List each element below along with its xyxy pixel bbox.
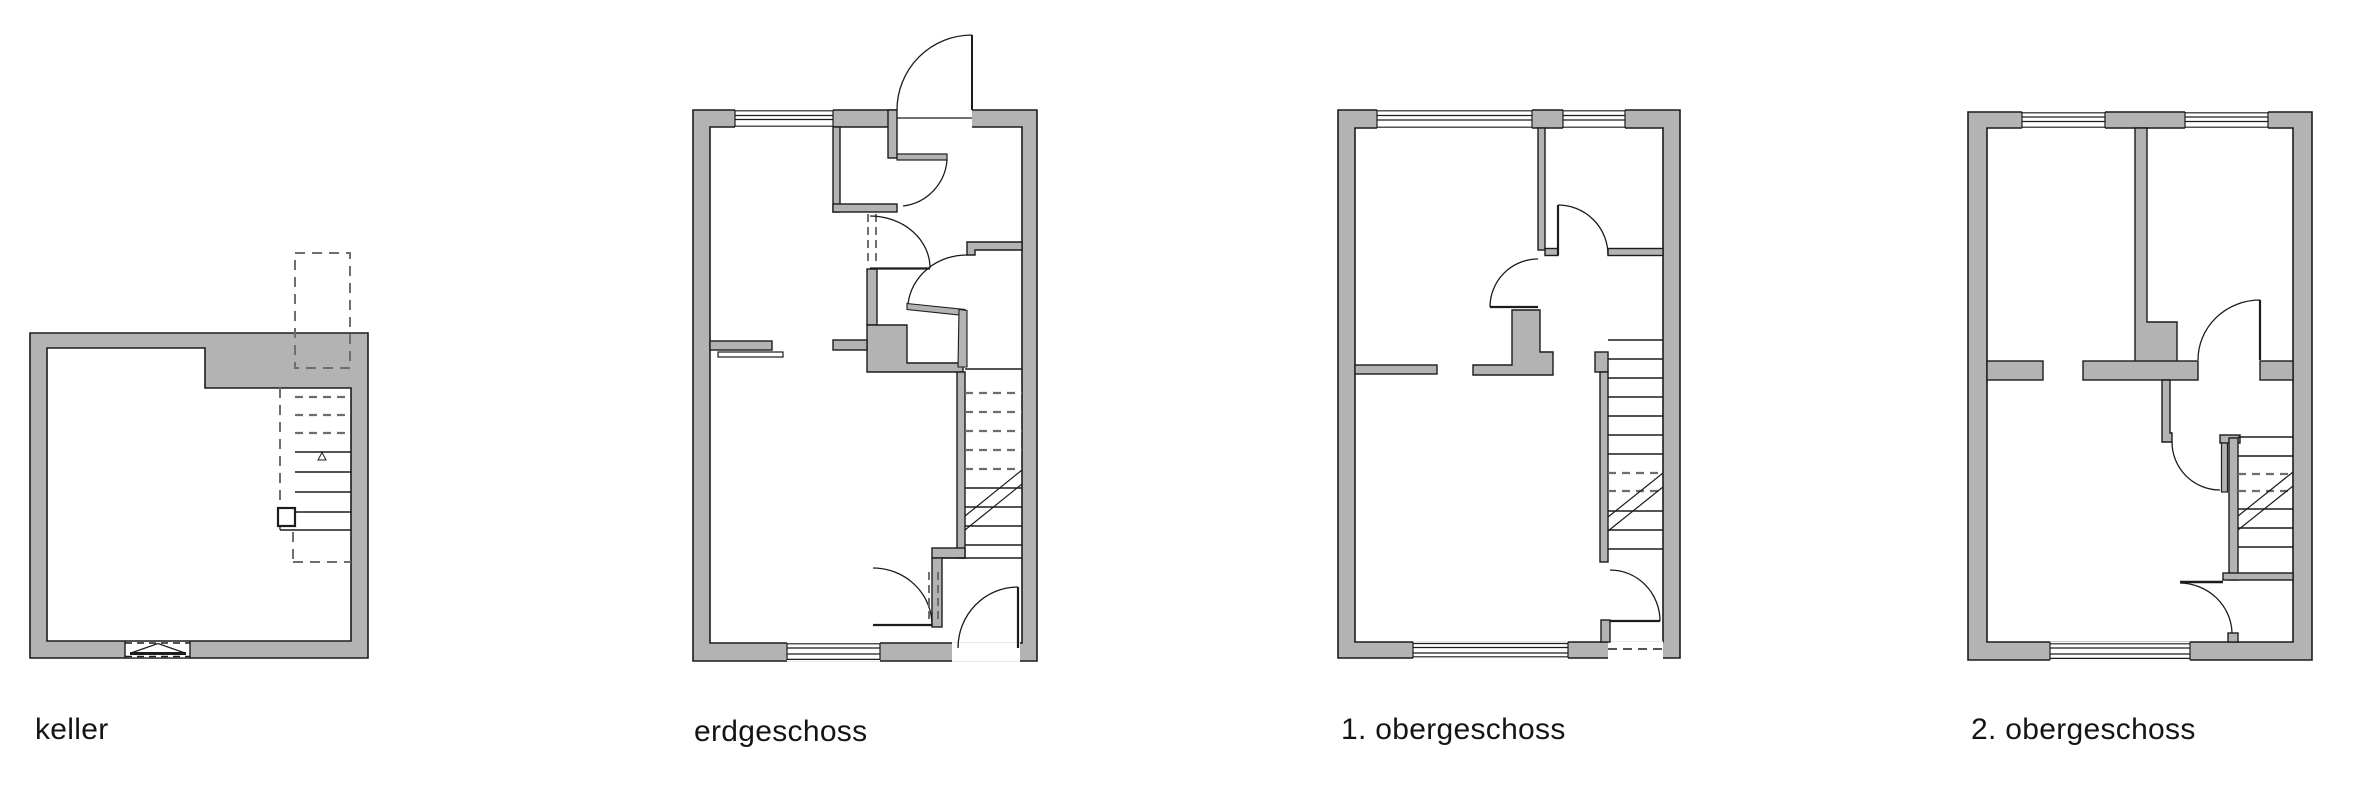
floorplan-obergeschoss-1-drawing	[1330, 100, 1690, 670]
floorplan-erdgeschoss-drawing	[685, 25, 1045, 670]
label-erdgeschoss: erdgeschoss	[694, 716, 867, 748]
floorplan-erdgeschoss	[685, 25, 1045, 670]
floor-plans-sheet: keller erdgeschoss 1. obergeschoss 2. ob…	[0, 0, 2365, 798]
floorplan-keller-drawing	[20, 245, 380, 670]
floorplan-keller	[20, 245, 380, 670]
floorplan-obergeschoss-2-drawing	[1960, 100, 2320, 670]
label-obergeschoss-2: 2. obergeschoss	[1971, 714, 2196, 746]
floorplan-obergeschoss-1	[1330, 100, 1690, 670]
label-obergeschoss-1: 1. obergeschoss	[1341, 714, 1566, 746]
floorplan-obergeschoss-2	[1960, 100, 2320, 670]
label-keller: keller	[35, 714, 109, 746]
